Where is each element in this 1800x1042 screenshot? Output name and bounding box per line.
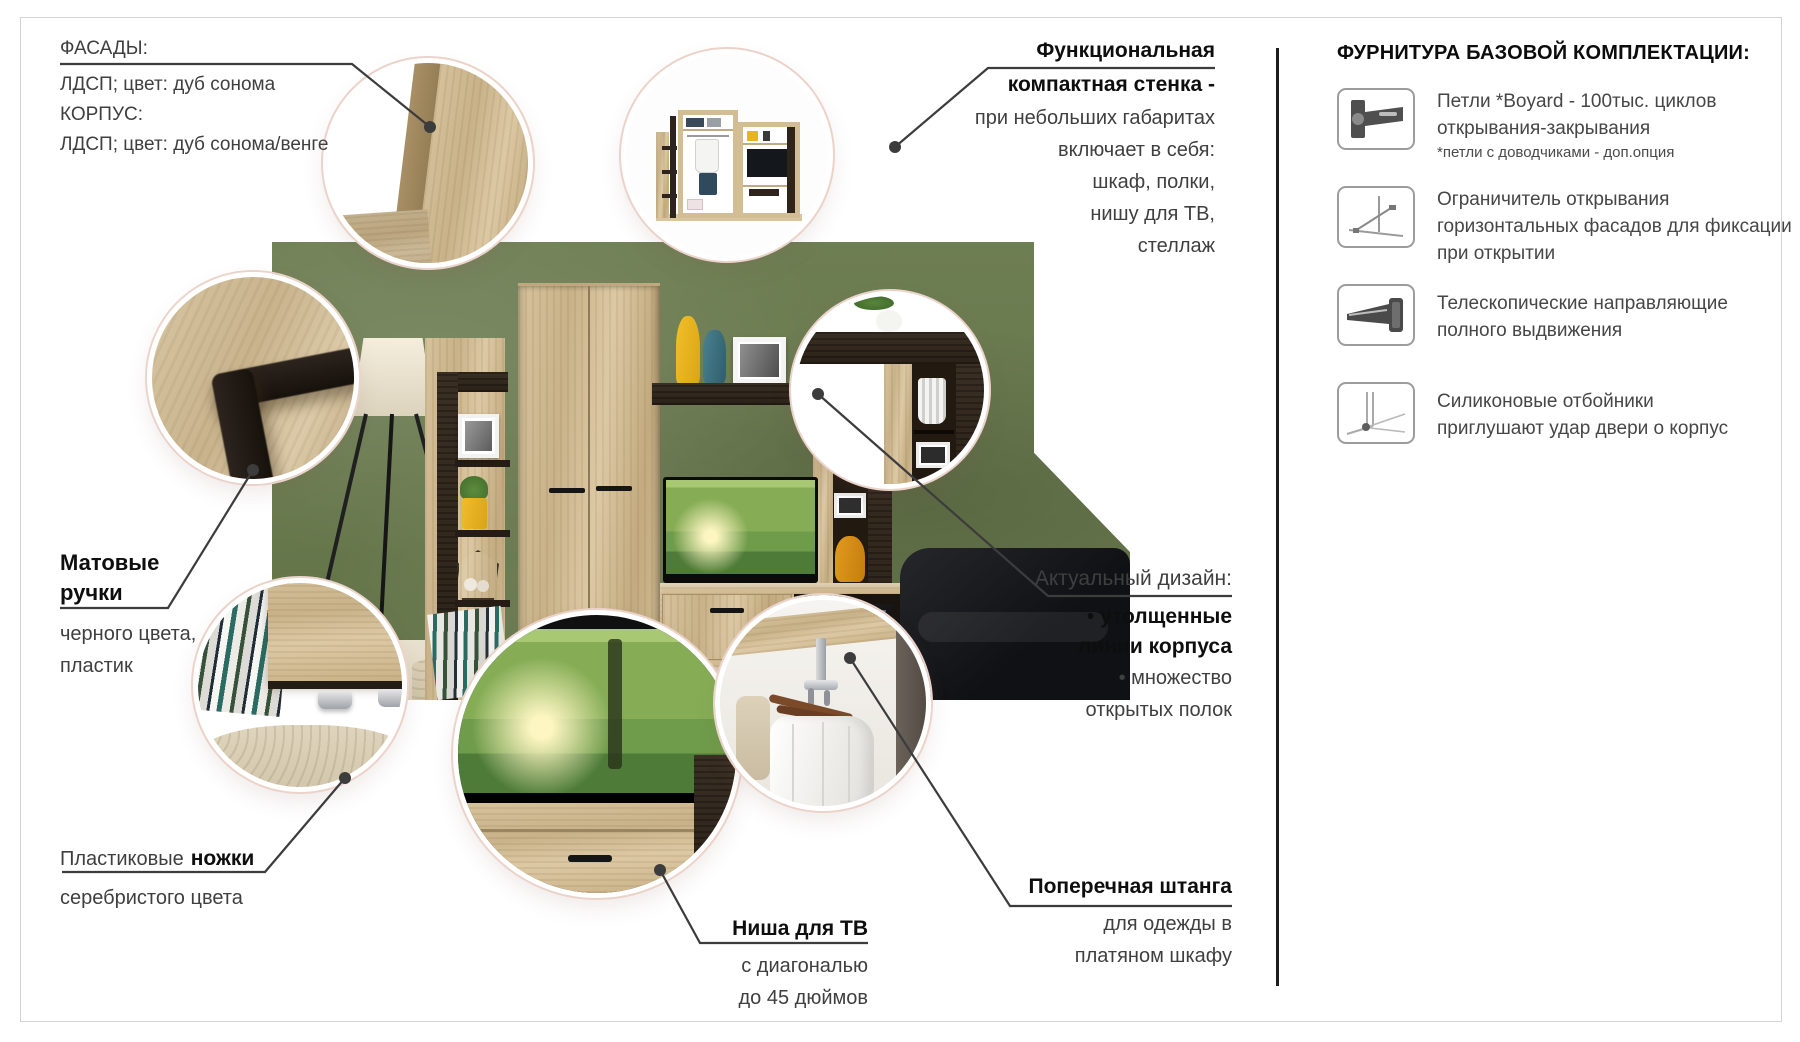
circle-handle-detail: [147, 272, 359, 484]
compact-line: нишу для ТВ,: [975, 198, 1215, 230]
sidebar-item-hinges: Петли *Boyard - 100тыс. циклов открывани…: [1437, 88, 1716, 164]
photo-frame-picture: [921, 447, 945, 463]
design-line: • множество: [1035, 662, 1232, 694]
legs-title-bold: ножки: [191, 847, 255, 870]
design-bold-line: линии корпуса: [1035, 632, 1232, 662]
compact-line: шкаф, полки,: [975, 166, 1215, 198]
deco-ball: [477, 580, 489, 592]
mini-blouse: [695, 139, 719, 173]
blouse-fold: [792, 724, 794, 804]
photo-frame-picture: [740, 344, 779, 377]
callout-facade: ФАСАДЫ: ЛДСП; цвет: дуб сонома КОРПУС: Л…: [60, 34, 328, 160]
plant: [460, 476, 488, 500]
rod-bracket: [816, 638, 826, 682]
floor-lamp-shade: [352, 338, 434, 416]
mini-media: [749, 189, 779, 196]
mini-venge-strip: [787, 127, 795, 213]
compact-line: включает в себя:: [975, 134, 1215, 166]
callout-rod: Поперечная штанга для одежды в платяном …: [1029, 872, 1233, 972]
rod-title: Поперечная штанга: [1029, 872, 1233, 902]
circle-legs-detail: [193, 578, 407, 792]
silicone-bumper-icon: [1337, 382, 1415, 444]
photo-frame: [834, 493, 866, 518]
facade-oak-corner: [323, 209, 432, 268]
drawer-handle-detail: [568, 855, 612, 862]
hinge-icon: [1337, 88, 1415, 150]
circle-wall-unit: [621, 49, 833, 261]
mini-box: [687, 199, 703, 210]
photo-frame: [916, 442, 950, 468]
mini-shelf: [662, 146, 677, 150]
facade-line: ЛДСП; цвет: дуб сонома/венге: [60, 130, 328, 160]
tv-screen: [666, 480, 815, 574]
compact-line: при небольших габаритах: [975, 102, 1215, 134]
circle-design-detail: [791, 291, 989, 489]
photo-frame-picture: [839, 498, 861, 513]
niche-side-venge: [694, 755, 736, 893]
sidebar-title: ФУРНИТУРА БАЗОВОЙ КОМПЛЕКТАЦИИ:: [1337, 42, 1750, 65]
callout-design: Актуальный дизайн: • утолщенные линии ко…: [1035, 564, 1232, 726]
silicone-bumper-icon-glyph: [1345, 390, 1407, 436]
mini-vase: [763, 131, 770, 141]
mini-tv: [747, 149, 791, 177]
handles-line: черного цвета,: [60, 618, 196, 650]
sidebar-item-note: *петли с доводчиками - доп.опция: [1437, 142, 1716, 164]
mini-yellow-box: [747, 131, 758, 141]
design-line: открытых полок: [1035, 694, 1232, 726]
legs-line: серебристого цвета: [60, 882, 254, 914]
tree-trunk: [608, 639, 622, 769]
sidebar-item-line: Силиконовые отбойники: [1437, 388, 1728, 415]
facade-title: ФАСАДЫ:: [60, 34, 328, 64]
facade-line: КОРПУС:: [60, 100, 328, 130]
sidebar-item-line: Телескопические направляющие: [1437, 290, 1728, 317]
cabinet-bottom-corner: [268, 578, 407, 683]
tv-niche-line: до 45 дюймов: [732, 982, 868, 1014]
detail-shelf: [914, 430, 954, 434]
sidebar-item-slides: Телескопические направляющие полного выд…: [1437, 290, 1728, 344]
mini-skirt: [699, 173, 717, 195]
circle-rod-detail: [715, 595, 931, 811]
rod-line: платяном шкафу: [1029, 940, 1233, 972]
teal-glass-vase: [703, 330, 726, 384]
drawer-slide-icon-glyph: [1345, 292, 1407, 338]
rod-line: для одежды в: [1029, 908, 1233, 940]
circle-tv-detail: [453, 610, 741, 898]
plastic-leg: [318, 691, 352, 709]
handles-title-line: Матовые: [60, 548, 196, 578]
drawer-handle: [710, 608, 744, 613]
deco-ball: [464, 578, 477, 591]
mini-shelf-line: [683, 129, 733, 131]
yellow-pot: [462, 498, 487, 529]
orange-vase: [835, 536, 865, 582]
photo-frame: [733, 337, 786, 384]
sidebar-item-bumpers: Силиконовые отбойники приглушают удар дв…: [1437, 388, 1728, 442]
sidebar-item-line: при открытии: [1437, 240, 1792, 267]
facade-line: ЛДСП; цвет: дуб сонома: [60, 70, 328, 100]
design-title: Актуальный дизайн:: [1035, 564, 1232, 594]
mini-shelf: [662, 194, 677, 198]
design-bold-line: • утолщенные: [1035, 602, 1232, 632]
yellow-vase: [676, 316, 700, 384]
succulent: [854, 296, 894, 310]
callout-handles: Матовые ручки черного цвета, пластик: [60, 548, 196, 682]
drawer-seam: [458, 829, 694, 832]
mini-wardrobe-open: [678, 110, 738, 218]
tv: [663, 477, 818, 583]
blouse-fold: [848, 726, 850, 802]
sidebar-item-line: горизонтальных фасадов для фиксации: [1437, 213, 1792, 240]
handles-line: пластик: [60, 650, 196, 682]
knit-garment: [736, 696, 770, 780]
white-pot: [876, 310, 902, 332]
photo-frame: [458, 414, 499, 458]
legs-title-line: Пластиковыеножки: [60, 844, 254, 874]
photo-white-cutout: [1034, 242, 1130, 552]
sidebar-item-line: приглушают удар двери о корпус: [1437, 415, 1728, 442]
infographic-page: ФАСАДЫ: ЛДСП; цвет: дуб сонома КОРПУС: Л…: [0, 0, 1800, 1042]
shelf-board: [455, 530, 510, 537]
drawer-slide-icon: [1337, 284, 1415, 346]
compact-title-line: компактная стенка -: [975, 68, 1215, 102]
rod-hook: [824, 690, 830, 706]
door-stay-icon-glyph: [1345, 194, 1407, 240]
callout-legs: Пластиковыеножки серебристого цвета: [60, 844, 254, 914]
shelf-board: [455, 460, 510, 467]
wardrobe-side-dark: [896, 630, 931, 811]
rug-detail: [193, 725, 407, 792]
sidebar-item-line: Петли *Boyard - 100тыс. циклов: [1437, 88, 1716, 115]
compact-line: стеллаж: [975, 230, 1215, 262]
section-divider: [1276, 48, 1279, 986]
hinge-icon-glyph: [1345, 96, 1407, 142]
wardrobe-handle: [596, 486, 632, 491]
sidebar-item-door-stay: Ограничитель открывания горизонтальных ф…: [1437, 186, 1792, 267]
handles-title-line: ручки: [60, 578, 196, 608]
compact-title-line: Функциональная: [975, 34, 1215, 68]
mini-ladder-post: [670, 116, 676, 218]
detail-oak-column: [884, 364, 912, 489]
mini-tv-section: [738, 122, 800, 218]
mini-rail: [687, 135, 729, 137]
sidebar-item-line: Ограничитель открывания: [1437, 186, 1792, 213]
detail-venge-column: [956, 364, 986, 489]
photo-frame-picture: [465, 421, 492, 451]
wardrobe-handle: [549, 488, 585, 493]
circle-facade-detail: [323, 58, 533, 268]
mini-shelf: [662, 170, 677, 174]
sidebar-item-line: полного выдвижения: [1437, 317, 1728, 344]
mini-folded-clothes: [686, 118, 704, 127]
shelf-board: [455, 600, 510, 607]
cabinet-bottom-edge: [268, 681, 407, 689]
callout-compact: Функциональная компактная стенка - при н…: [975, 34, 1215, 262]
tv-niche-title: Ниша для ТВ: [732, 914, 868, 944]
detail-top-beam: [791, 332, 989, 364]
white-vase: [918, 378, 946, 424]
callout-tv-niche: Ниша для ТВ с диагональю до 45 дюймов: [732, 914, 868, 1014]
plastic-leg: [378, 689, 407, 707]
door-stay-icon: [1337, 186, 1415, 248]
sidebar-item-line: открывания-закрывания: [1437, 115, 1716, 142]
mini-ladder-panel: [656, 132, 669, 218]
mini-folded-clothes: [707, 118, 721, 127]
legs-title-prefix: Пластиковые: [60, 848, 184, 870]
tv-niche-line: с диагональю: [732, 950, 868, 982]
blouse-fold: [822, 722, 824, 808]
matte-handle: [164, 298, 359, 484]
white-blouse: [770, 716, 874, 811]
